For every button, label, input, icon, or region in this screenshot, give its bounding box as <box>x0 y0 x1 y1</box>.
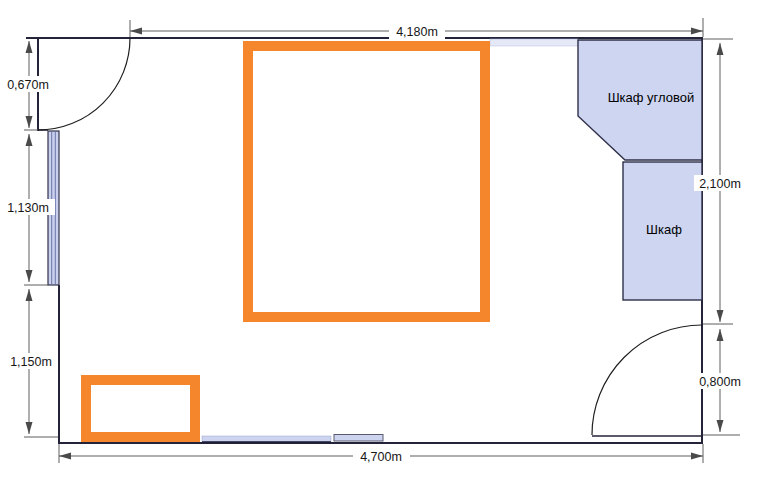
dimension-left-window: 1,130m <box>2 134 55 282</box>
door-bottom-right <box>592 325 702 436</box>
arrow-right <box>691 28 703 35</box>
bottom-wall-strip-2 <box>334 435 383 442</box>
top-wall-strip <box>490 39 578 46</box>
arrow-left <box>59 453 71 460</box>
dimension-right-upper-label: 2,100m <box>699 177 741 191</box>
arrow-up <box>717 43 724 55</box>
dimension-top-label: 4,180m <box>396 25 438 39</box>
arrow-up <box>26 41 33 53</box>
arrow-down <box>26 422 33 434</box>
dimension-left-lower-label: 1,150m <box>10 355 52 369</box>
dimension-left-window-label: 1,130m <box>7 201 49 215</box>
bottom-strip-body <box>202 436 331 442</box>
furniture-highlight-small <box>86 380 195 437</box>
dimension-bottom: 4,700m <box>59 444 703 464</box>
floor-plan-drawing: Шкаф угловой Шкаф 4,180m 4,700m 0,670m <box>0 0 770 487</box>
dimension-left-lower: 1,150m <box>5 289 58 434</box>
furniture-highlight-large <box>248 46 485 317</box>
dimension-left-door: 0,670m <box>2 41 54 128</box>
dimension-right-door-label: 0,800m <box>699 375 741 389</box>
arrow-down <box>26 270 33 282</box>
arrow-up <box>717 329 724 341</box>
arrow-down <box>717 310 724 322</box>
arrow-right <box>691 453 703 460</box>
door-swing-arc <box>592 325 702 435</box>
dimension-bottom-label: 4,700m <box>360 450 402 464</box>
arrow-up <box>26 134 33 146</box>
dimension-top: 4,180m <box>130 18 703 39</box>
corner-wardrobe-label: Шкаф угловой <box>608 90 695 105</box>
wardrobe: Шкаф <box>623 162 702 300</box>
arrow-left <box>130 28 142 35</box>
dimension-left-door-label: 0,670m <box>7 78 49 92</box>
floor-plan: Шкаф угловой Шкаф 4,180m 4,700m 0,670m <box>0 0 770 487</box>
arrow-down <box>26 116 33 128</box>
bottom-wall-strip-1 <box>202 436 331 442</box>
arrow-up <box>26 289 33 301</box>
wardrobe-label: Шкаф <box>646 222 682 237</box>
corner-wardrobe: Шкаф угловой <box>578 40 702 160</box>
arrow-down <box>717 420 724 432</box>
